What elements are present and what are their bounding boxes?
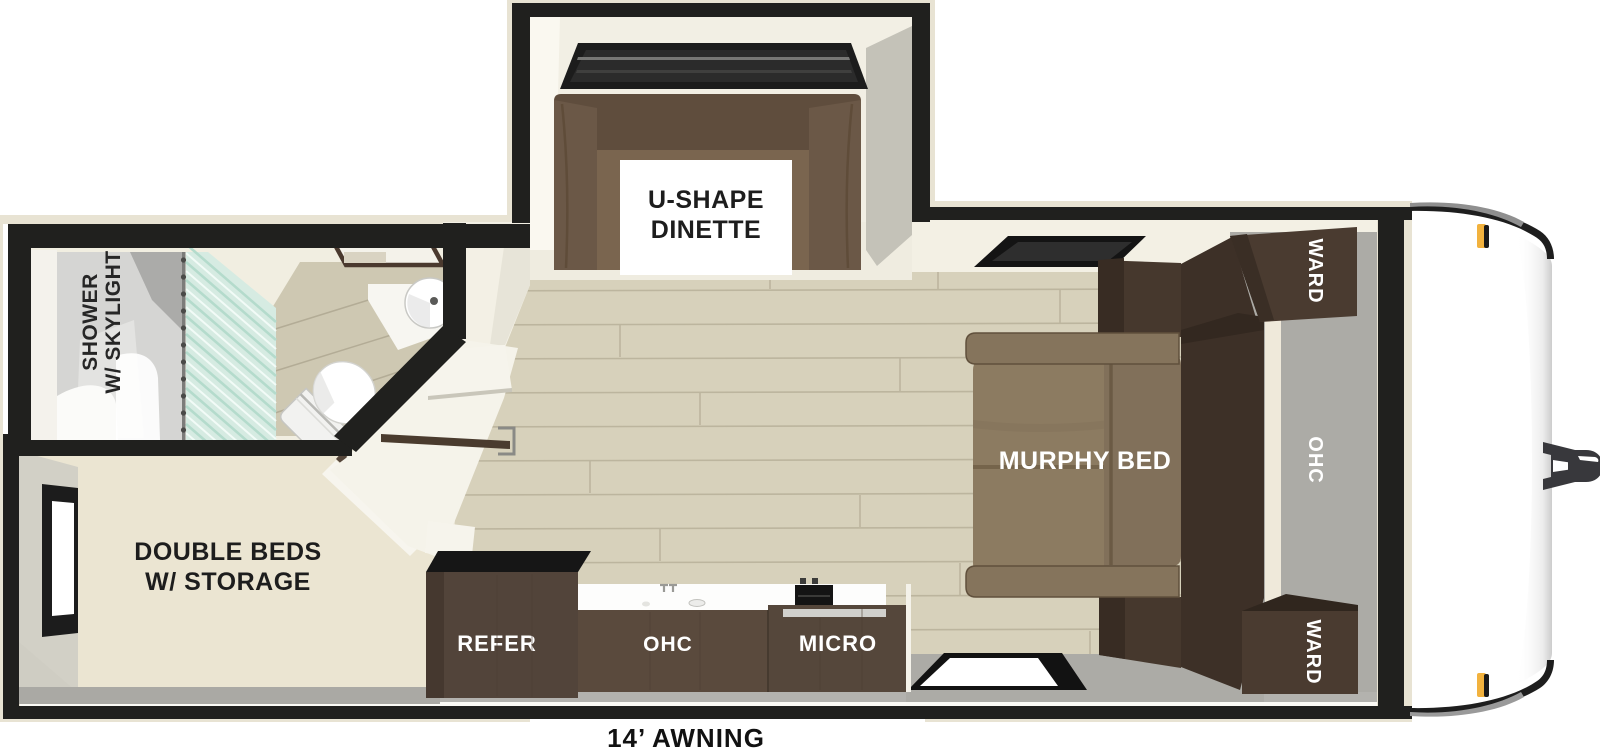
- svg-text:WARD: WARD: [1302, 619, 1324, 684]
- svg-text:DOUBLE BEDS: DOUBLE BEDS: [134, 538, 321, 566]
- svg-text:W/ SKYLIGHT: W/ SKYLIGHT: [102, 250, 125, 393]
- svg-text:WARD: WARD: [1304, 238, 1326, 303]
- svg-text:DINETTE: DINETTE: [651, 216, 761, 244]
- svg-text:U-SHAPE: U-SHAPE: [648, 186, 764, 214]
- svg-text:14’ AWNING: 14’ AWNING: [607, 723, 765, 749]
- svg-text:OHC: OHC: [643, 633, 693, 656]
- svg-text:OHC: OHC: [1304, 436, 1326, 483]
- svg-text:MICRO: MICRO: [799, 631, 877, 656]
- svg-text:SHOWER: SHOWER: [79, 273, 102, 371]
- svg-text:MURPHY BED: MURPHY BED: [999, 447, 1172, 475]
- svg-text:W/ STORAGE: W/ STORAGE: [145, 568, 311, 596]
